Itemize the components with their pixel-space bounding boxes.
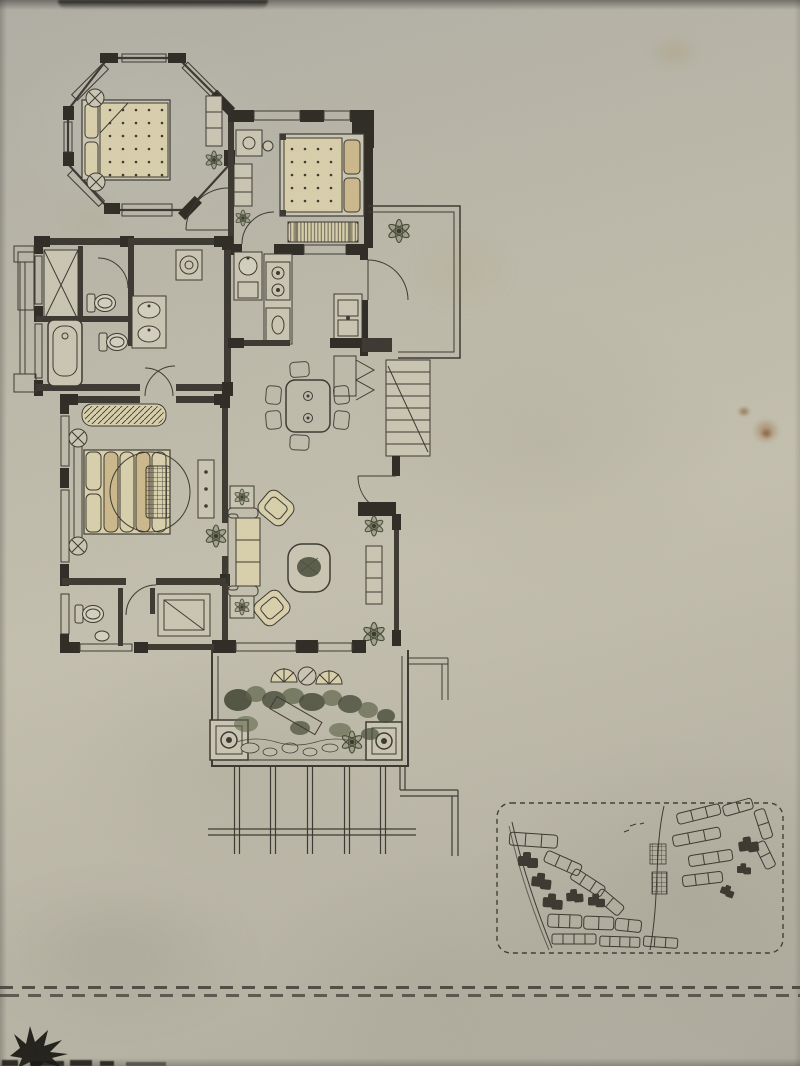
floor-plan-drawing — [0, 0, 800, 1066]
paper-background — [0, 0, 800, 1066]
paper-grain — [0, 0, 800, 1066]
